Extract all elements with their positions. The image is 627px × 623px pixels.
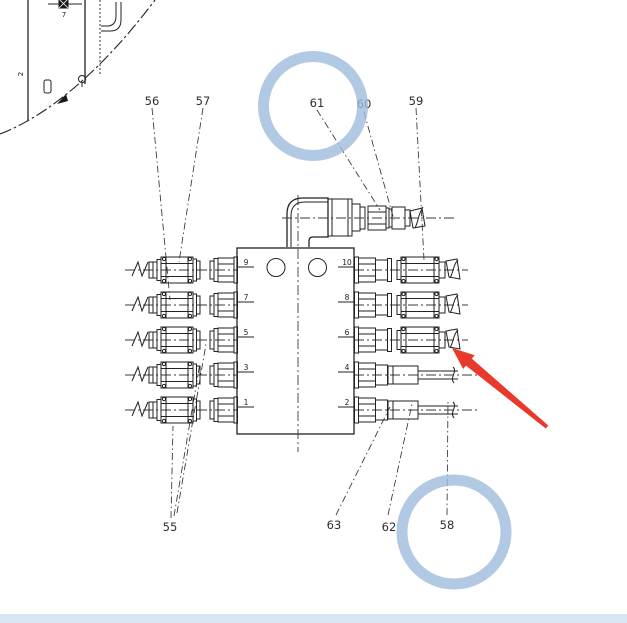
right-fitting-row-5	[355, 397, 459, 423]
callout-labels: 56 57 61 60 59 55 63 62 58	[145, 94, 455, 534]
leader-55c	[177, 344, 206, 513]
port-number: 6	[345, 328, 350, 337]
port-number: 9	[244, 258, 249, 267]
leader-57	[179, 108, 203, 262]
port-number: 7	[244, 293, 249, 302]
red-arrow	[452, 348, 548, 429]
leader-61	[317, 110, 380, 210]
port-number: 5	[244, 328, 249, 337]
port-number: 2	[345, 398, 350, 407]
fragment-edge-mark: 2	[17, 72, 25, 76]
mount-hole-left	[267, 259, 285, 277]
callout-63: 63	[327, 518, 342, 532]
callout-58: 58	[440, 518, 455, 532]
leader-55b	[174, 363, 200, 516]
small-slot	[44, 80, 51, 93]
fragment-bolt-mark: 7	[62, 11, 66, 19]
pipe-outline	[101, 2, 121, 31]
right-fittings	[354, 257, 480, 423]
parts-diagram-view: 7 2 9 7 5 3 1 10 8 6 4 2	[0, 0, 627, 623]
port-number: 1	[244, 398, 249, 407]
callout-56: 56	[145, 94, 160, 108]
port-number: 3	[244, 363, 249, 372]
section-arrowhead	[57, 94, 68, 104]
callout-57: 57	[196, 94, 211, 108]
callout-61: 61	[310, 96, 325, 110]
leader-63	[336, 407, 390, 515]
leader-55a	[171, 426, 173, 518]
callout-55: 55	[163, 520, 178, 534]
highlight-circle-58	[402, 480, 506, 584]
leader-58	[447, 399, 448, 515]
manifold-block	[237, 195, 354, 452]
pipe-inner	[101, 2, 116, 26]
callout-62: 62	[382, 520, 397, 534]
bottom-panel-edge	[0, 614, 627, 623]
callout-59: 59	[409, 94, 424, 108]
left-fittings	[125, 257, 238, 423]
leader-59	[416, 108, 424, 260]
detail-circle-arc	[0, 0, 155, 134]
port-number: 10	[342, 258, 352, 267]
right-fitting-row-4	[355, 362, 459, 388]
port-number: 8	[345, 293, 350, 302]
top-elbow-assembly	[282, 198, 455, 247]
leader-60	[364, 112, 394, 220]
mount-hole-right	[309, 259, 327, 277]
diagram-canvas: 7 2 9 7 5 3 1 10 8 6 4 2	[0, 0, 627, 623]
port-number: 4	[345, 363, 350, 372]
fragment-drawing: 7 2	[0, 0, 155, 134]
